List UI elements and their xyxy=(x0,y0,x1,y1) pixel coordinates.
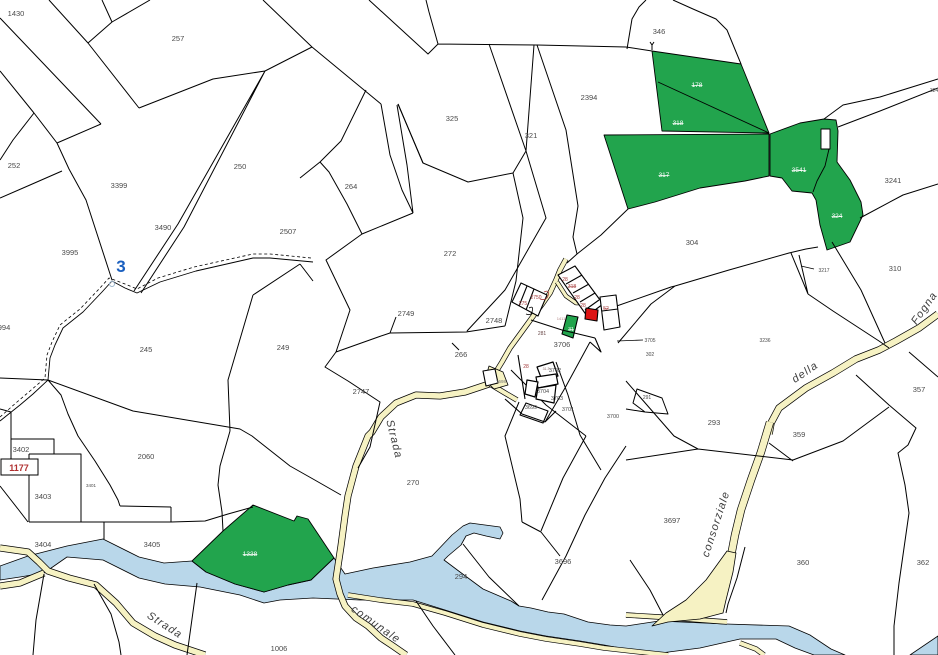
svg-text:291: 291 xyxy=(643,395,652,401)
svg-text:257: 257 xyxy=(172,34,185,43)
svg-text:3706: 3706 xyxy=(554,340,571,349)
svg-text:318: 318 xyxy=(568,284,577,290)
svg-text:28: 28 xyxy=(562,277,568,283)
svg-text:249: 249 xyxy=(277,343,290,352)
svg-text:360: 360 xyxy=(797,558,810,567)
svg-text:275: 275 xyxy=(519,301,528,307)
svg-text:266: 266 xyxy=(455,350,468,359)
svg-text:270: 270 xyxy=(407,478,420,487)
svg-text:3703: 3703 xyxy=(551,396,563,402)
svg-text:1177: 1177 xyxy=(9,463,29,473)
svg-text:324: 324 xyxy=(832,213,843,220)
svg-text:304: 304 xyxy=(686,238,699,247)
svg-text:317: 317 xyxy=(659,172,670,179)
svg-text:2060: 2060 xyxy=(138,452,155,461)
svg-text:264: 264 xyxy=(345,182,358,191)
svg-text:3699: 3699 xyxy=(525,405,537,411)
svg-text:3401: 3401 xyxy=(86,483,97,488)
svg-text:28: 28 xyxy=(574,295,580,301)
svg-text:2507: 2507 xyxy=(280,227,297,236)
svg-text:3217: 3217 xyxy=(818,268,829,274)
svg-text:318: 318 xyxy=(673,120,684,127)
svg-text:3403: 3403 xyxy=(35,492,52,501)
svg-text:3696: 3696 xyxy=(555,557,572,566)
svg-text:272: 272 xyxy=(444,249,457,258)
svg-text:3705: 3705 xyxy=(644,338,655,344)
svg-text:310: 310 xyxy=(889,264,902,273)
svg-text:3541: 3541 xyxy=(792,167,807,174)
svg-text:2749: 2749 xyxy=(398,309,415,318)
svg-text:1006: 1006 xyxy=(271,644,288,653)
svg-text:178: 178 xyxy=(692,82,703,89)
svg-text:28: 28 xyxy=(580,303,586,309)
svg-text:3995: 3995 xyxy=(62,248,79,257)
svg-text:1338: 1338 xyxy=(243,551,258,558)
svg-text:1430: 1430 xyxy=(8,9,25,18)
svg-text:3399: 3399 xyxy=(111,181,128,190)
svg-text:3402: 3402 xyxy=(13,445,30,454)
svg-text:321: 321 xyxy=(525,131,538,140)
svg-text:3: 3 xyxy=(116,257,125,276)
svg-text:52: 52 xyxy=(603,306,609,312)
svg-text:3490: 3490 xyxy=(155,223,172,232)
svg-text:302: 302 xyxy=(646,352,655,358)
svg-text:3241: 3241 xyxy=(885,176,902,185)
svg-text:28: 28 xyxy=(523,364,529,370)
svg-text:3702: 3702 xyxy=(549,368,561,374)
svg-text:31: 31 xyxy=(568,327,574,333)
svg-text:325: 325 xyxy=(446,114,459,123)
svg-text:293: 293 xyxy=(708,418,721,427)
svg-text:346: 346 xyxy=(653,27,666,36)
svg-text:3700: 3700 xyxy=(607,414,619,420)
svg-text:3698: 3698 xyxy=(496,379,507,384)
svg-text:2750: 2750 xyxy=(530,295,541,301)
svg-text:3404: 3404 xyxy=(35,540,52,549)
svg-text:3405: 3405 xyxy=(144,540,161,549)
svg-text:281: 281 xyxy=(538,331,547,337)
svg-text:250: 250 xyxy=(234,162,247,171)
svg-text:324: 324 xyxy=(930,88,938,94)
svg-text:2748: 2748 xyxy=(486,316,503,325)
svg-text:245: 245 xyxy=(140,345,153,354)
svg-text:362: 362 xyxy=(917,558,930,567)
svg-text:2394: 2394 xyxy=(581,93,598,102)
svg-text:1411: 1411 xyxy=(557,316,566,321)
svg-text:359: 359 xyxy=(793,430,806,439)
svg-text:3697: 3697 xyxy=(664,516,681,525)
svg-text:252: 252 xyxy=(8,161,21,170)
svg-text:31.3: 31.3 xyxy=(543,367,550,371)
svg-text:2747: 2747 xyxy=(353,387,370,396)
svg-text:3236: 3236 xyxy=(759,338,770,344)
svg-text:994: 994 xyxy=(0,323,10,332)
svg-text:3701: 3701 xyxy=(562,407,574,413)
svg-text:357: 357 xyxy=(913,385,926,394)
svg-text:3704: 3704 xyxy=(537,389,549,395)
svg-text:294: 294 xyxy=(455,572,468,581)
